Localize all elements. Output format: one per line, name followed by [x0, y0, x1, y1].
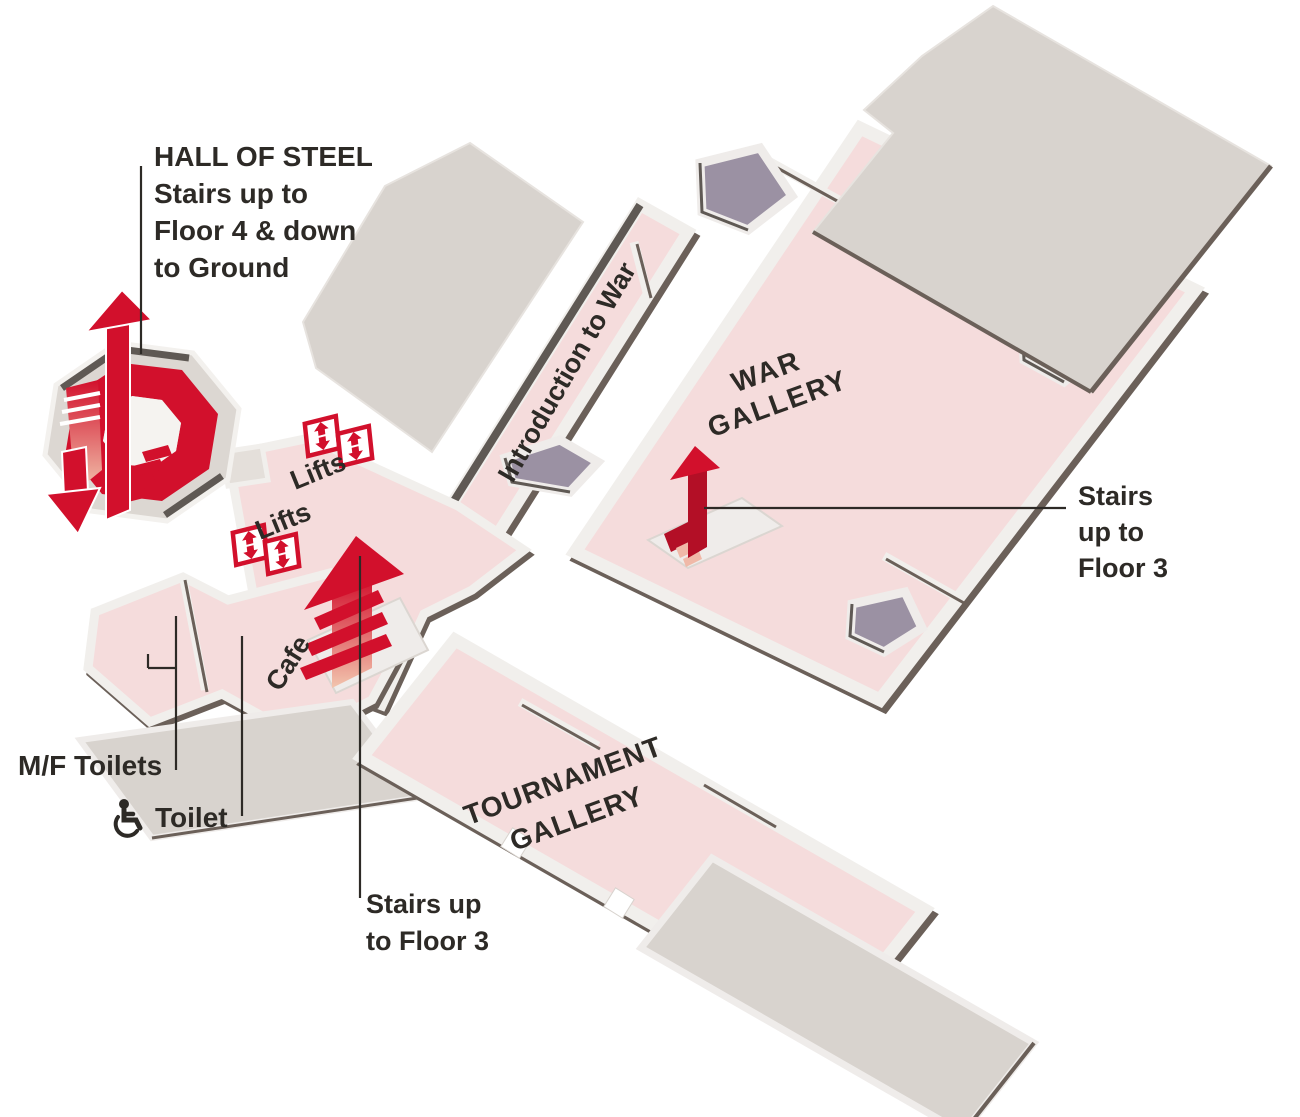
stairs-up-floor3-tournament-label: Stairs up to Floor 3	[366, 886, 489, 960]
floor-plan-page: HALL OF STEEL Stairs up to Floor 4 & dow…	[0, 0, 1300, 1117]
stair-void-top	[700, 148, 792, 230]
hall-of-steel-label: HALL OF STEEL Stairs up to Floor 4 & dow…	[154, 138, 373, 286]
accessible-toilet-label: Toilet	[155, 800, 228, 836]
hall-of-steel-title: HALL OF STEEL	[154, 138, 373, 175]
mf-toilets-label: M/F Toilets	[18, 748, 162, 784]
stairs-up-floor3-war-label: Stairs up to Floor 3	[1078, 478, 1168, 586]
